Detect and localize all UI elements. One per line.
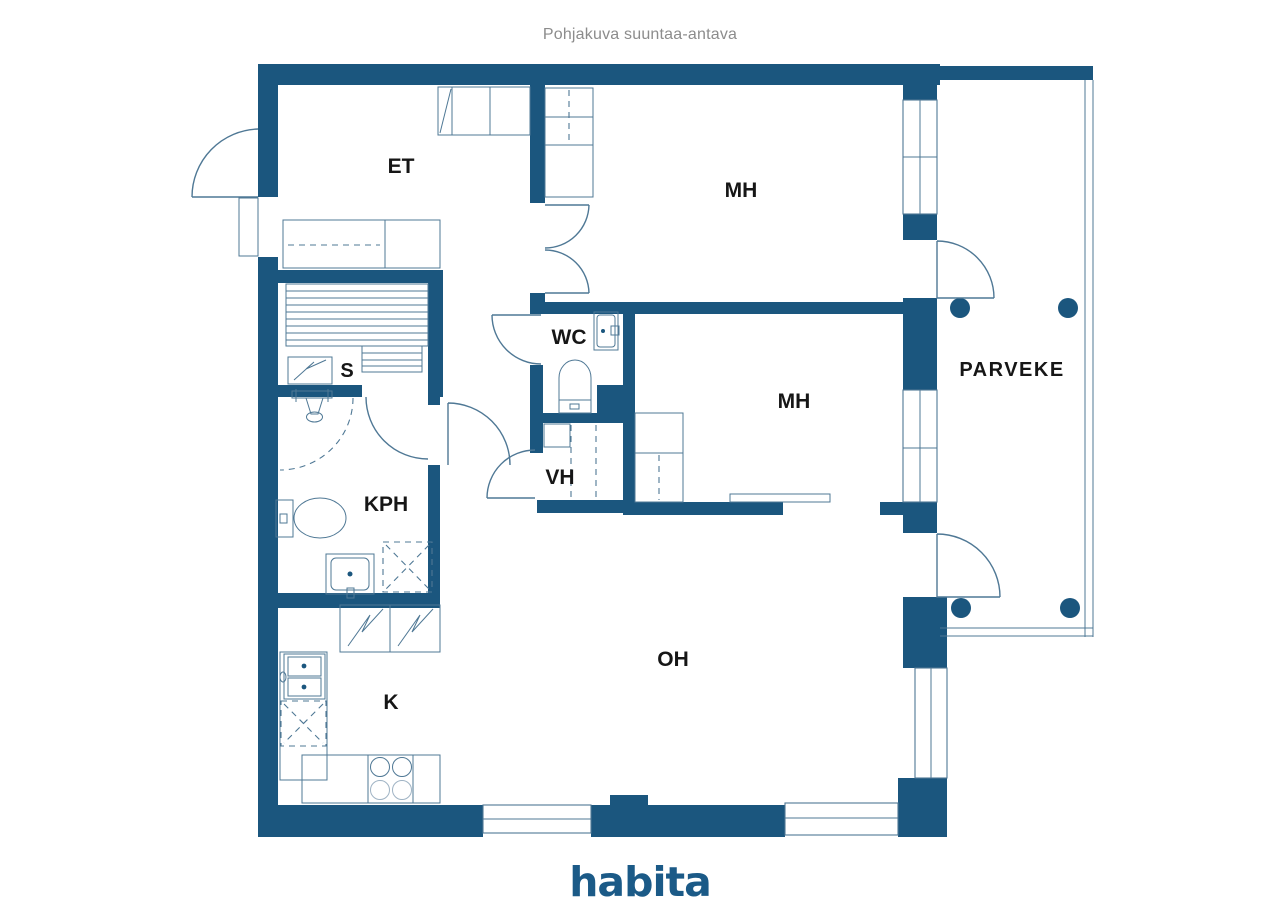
fridge-icon (340, 605, 390, 652)
room-label-parveke: PARVEKE (959, 359, 1064, 381)
mh-middle-wardrobe (635, 413, 683, 502)
balcony-door-bottom-swing (937, 534, 1000, 597)
window-bottom-left (483, 805, 591, 833)
window-right-oh (915, 668, 947, 778)
kitchen-sink-icon (280, 654, 325, 699)
window-bottom-right (785, 803, 898, 835)
habita-logo: habita (0, 858, 1280, 906)
wc-toilet-icon (559, 360, 591, 413)
hall-oh-door-swing (487, 450, 535, 498)
room-label-mh-middle: MH (778, 390, 811, 413)
balcony-door-top-swing (937, 241, 994, 298)
balcony-columns (950, 298, 1080, 618)
stove-icon (368, 755, 413, 803)
wc-door-swing (492, 315, 541, 364)
sauna-benches (286, 284, 428, 372)
freezer-icon (390, 605, 440, 652)
mh-middle-bench (730, 494, 830, 502)
room-label-kph: KPH (364, 493, 408, 516)
room-label-vh: VH (545, 466, 574, 489)
kitchen-counter-left (280, 652, 327, 780)
mh-top-door-swing (545, 205, 589, 293)
room-labels: ET MH WC MH PARVEKE S KPH VH OH K (340, 155, 1064, 714)
kitchen-counter-bottom (302, 755, 440, 803)
walls (258, 64, 1093, 837)
floorplan-page: Pohjakuva suuntaa-antava (0, 0, 1280, 906)
mh-top-wardrobe (545, 88, 593, 197)
windows (239, 100, 947, 835)
kph-door-swing (448, 403, 510, 465)
et-coat-closet (438, 87, 530, 135)
shower-area-dashed (280, 398, 353, 470)
window-mh-top (903, 100, 937, 214)
floorplan-drawing: ET MH WC MH PARVEKE S KPH VH OH K (0, 0, 1280, 906)
et-wardrobe (283, 220, 440, 268)
kph-toilet-icon (276, 498, 346, 538)
kph-sink-icon (326, 554, 374, 598)
entrance-door-swing (192, 129, 258, 197)
room-label-oh: OH (657, 648, 689, 671)
room-label-et: ET (388, 155, 415, 178)
room-label-sauna: S (340, 360, 353, 382)
dishwasher-icon (281, 701, 326, 746)
entrance-threshold (239, 198, 258, 256)
washing-machine-icon (383, 542, 432, 592)
room-label-mh-top: MH (725, 179, 758, 202)
wc-sink-icon (594, 312, 619, 350)
sauna-door-swing (366, 397, 428, 459)
room-label-wc: WC (552, 326, 587, 349)
sauna-stove-icon (288, 357, 332, 384)
window-mh-middle (903, 390, 937, 502)
room-label-kitchen: K (383, 691, 398, 714)
